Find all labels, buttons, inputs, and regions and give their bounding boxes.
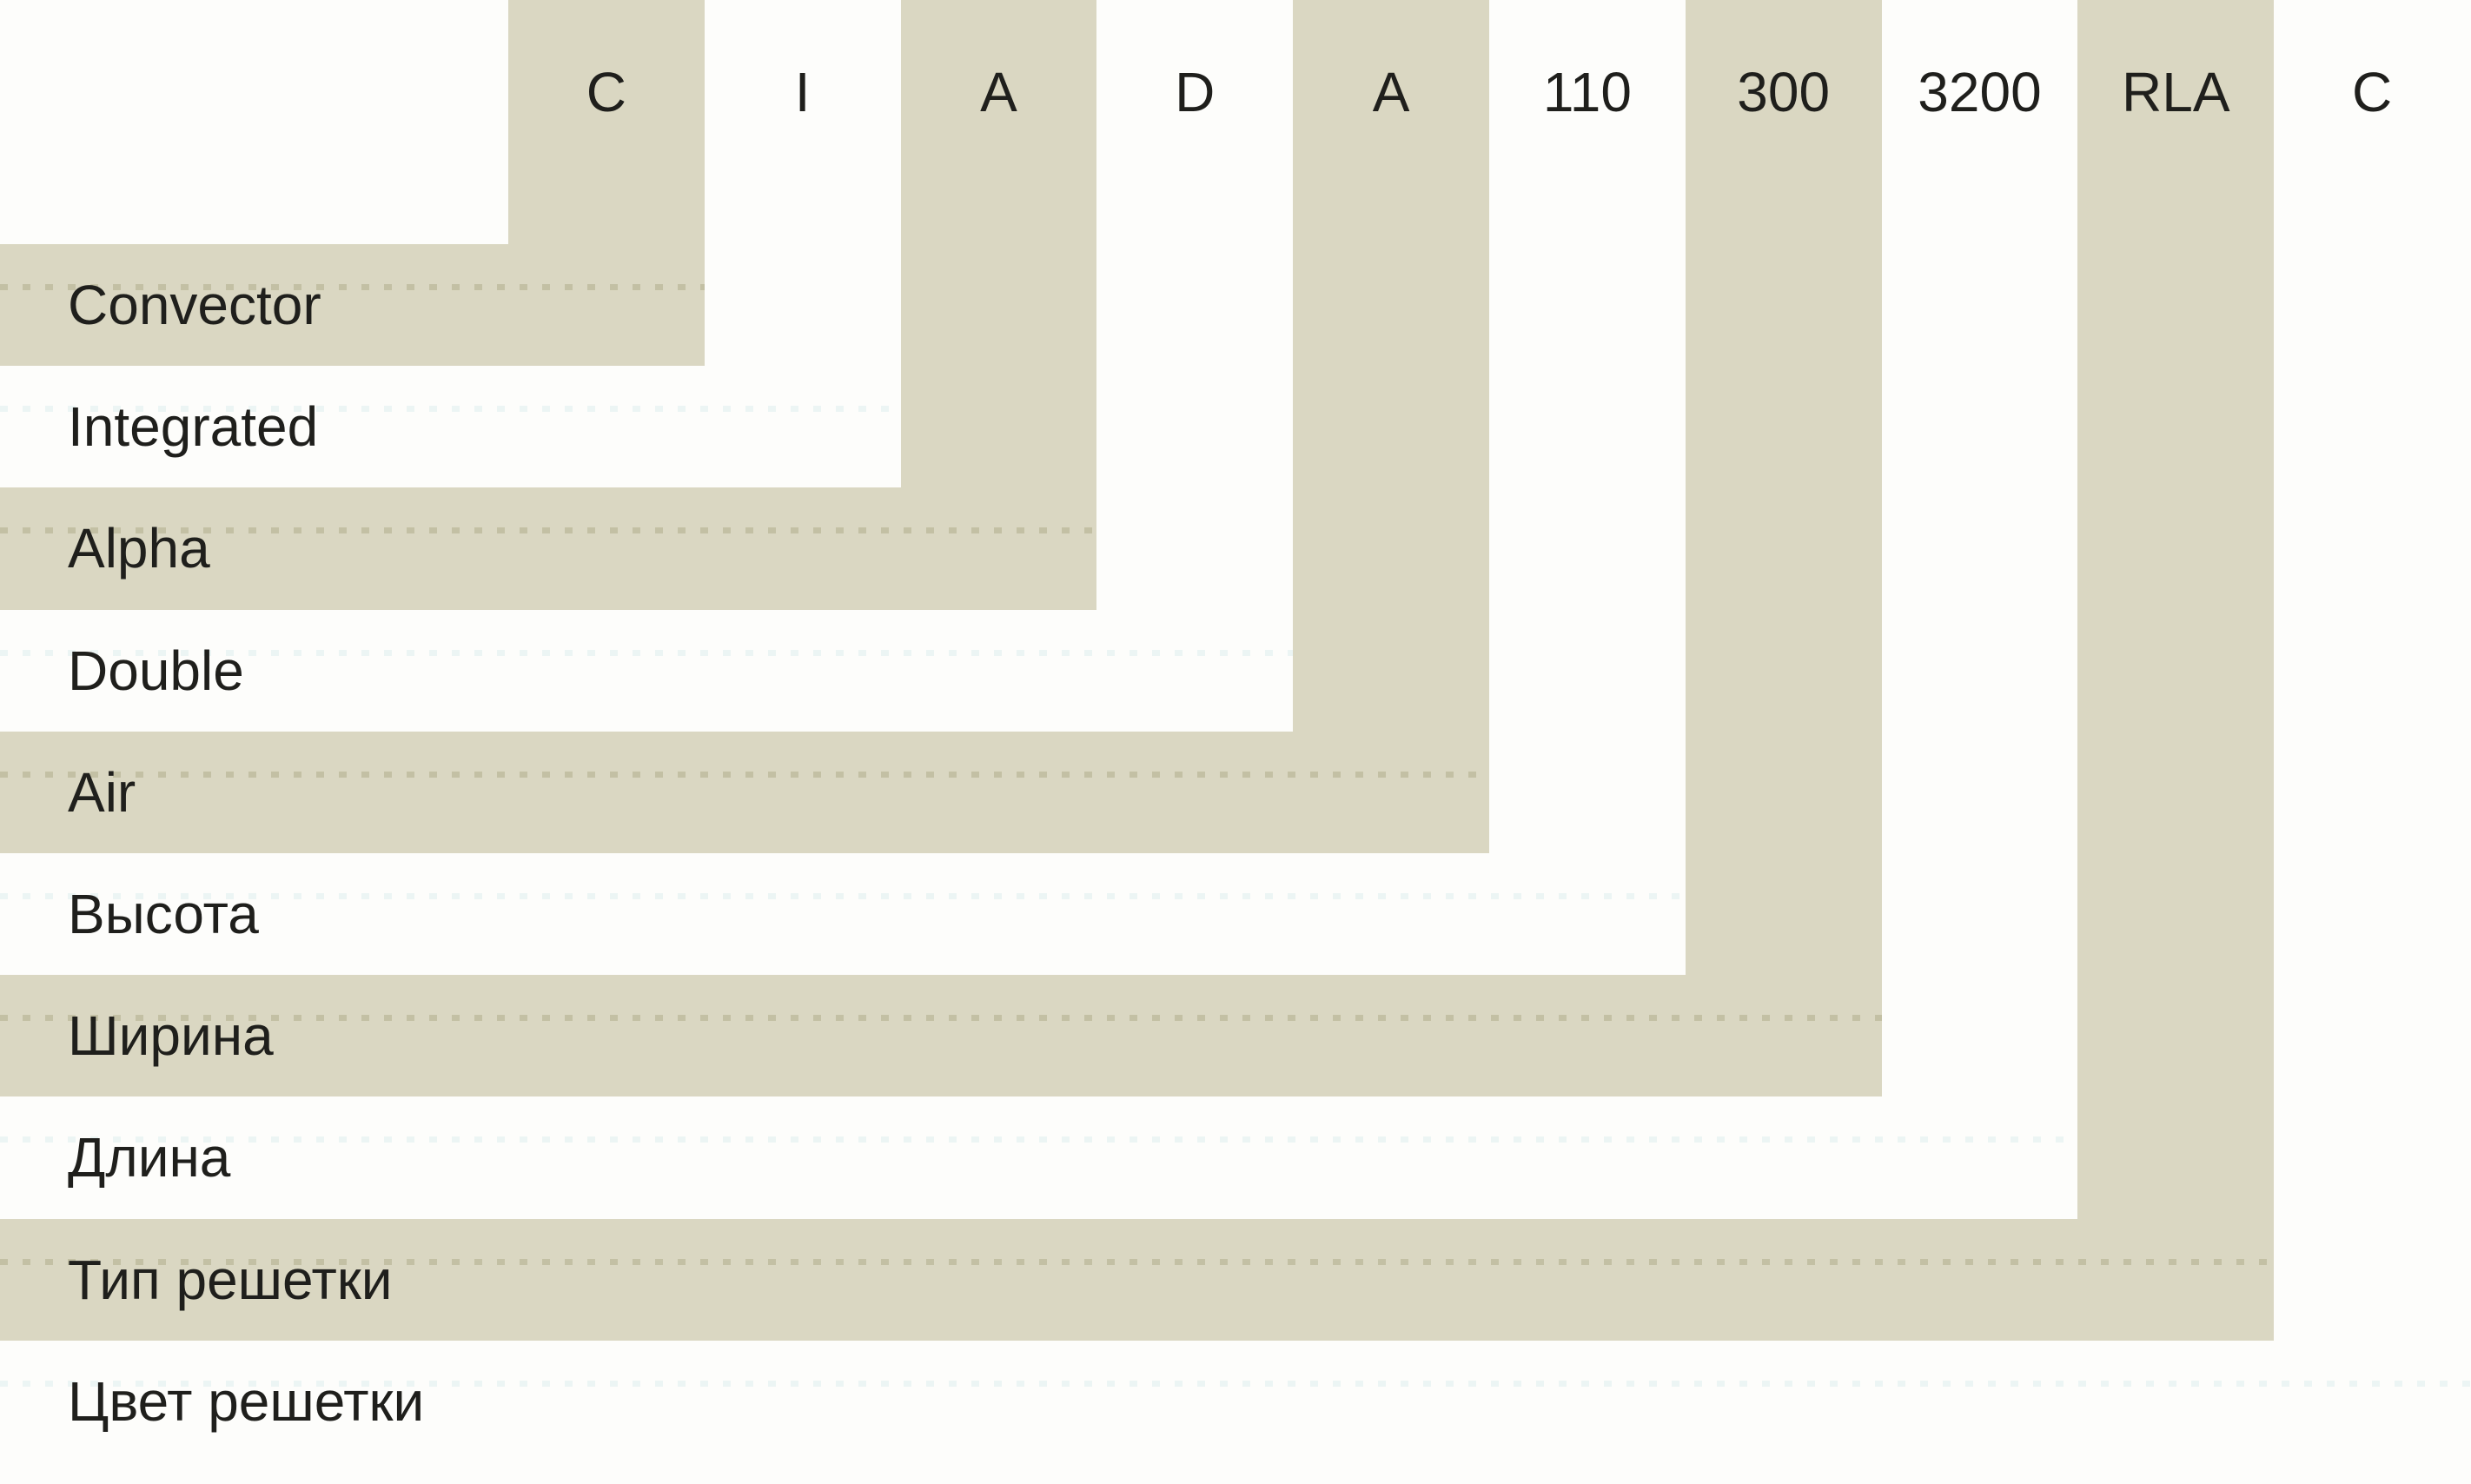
row-label-1: Integrated <box>68 366 318 487</box>
code-cell-0: C <box>508 0 705 184</box>
code-cell-8: RLA <box>2077 0 2274 184</box>
row-label-2: Alpha <box>68 487 210 609</box>
row-label-9: Цвет решетки <box>68 1341 424 1462</box>
row-separator-6 <box>0 1015 1882 1021</box>
row-separator-4 <box>0 772 1489 778</box>
product-code-diagram: CConvectorIIntegratedAAlphaDDoubleAAir11… <box>0 0 2471 1484</box>
row-label-7: Длина <box>68 1096 230 1218</box>
code-cell-2: A <box>901 0 1097 184</box>
row-band-6 <box>0 975 1882 1096</box>
code-cell-1: I <box>705 0 901 184</box>
row-label-0: Convector <box>68 244 321 366</box>
row-band-4 <box>0 732 1489 853</box>
row-band-7 <box>0 1096 2077 1218</box>
row-separator-7 <box>0 1136 2077 1143</box>
code-cell-5: 110 <box>1489 0 1686 184</box>
row-label-4: Air <box>68 732 136 853</box>
row-label-6: Ширина <box>68 975 274 1096</box>
code-cell-7: 3200 <box>1882 0 2078 184</box>
row-label-8: Тип решетки <box>68 1219 393 1341</box>
code-cell-3: D <box>1096 0 1293 184</box>
row-label-5: Высота <box>68 853 259 975</box>
code-cell-9: C <box>2274 0 2470 184</box>
code-cell-4: A <box>1293 0 1489 184</box>
row-label-3: Double <box>68 610 244 732</box>
code-cell-6: 300 <box>1686 0 1882 184</box>
column-band-8 <box>2077 0 2274 1341</box>
